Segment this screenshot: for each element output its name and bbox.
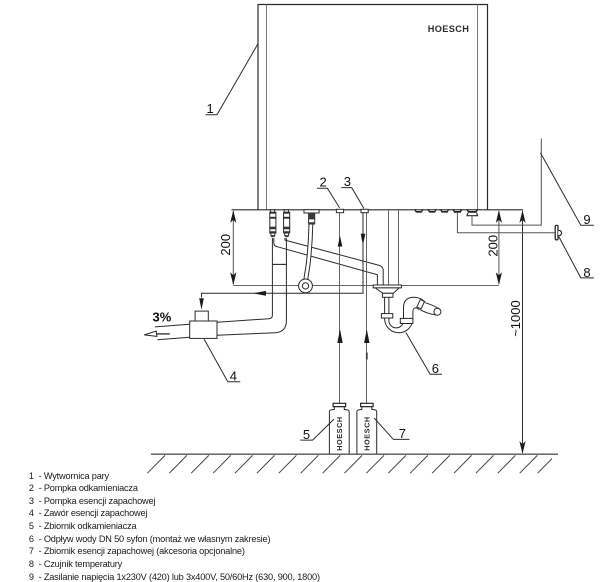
svg-text:200: 200: [486, 235, 501, 257]
svg-text:~1000: ~1000: [508, 300, 523, 337]
svg-text:1: 1: [207, 101, 214, 116]
svg-text:HOESCH: HOESCH: [428, 24, 469, 34]
svg-text:8: 8: [583, 265, 590, 280]
svg-text:4: 4: [230, 368, 237, 383]
svg-text:HOESCH: HOESCH: [335, 416, 344, 451]
svg-text:7: 7: [399, 426, 406, 441]
svg-text:6: 6: [432, 361, 439, 376]
svg-text:3%: 3%: [153, 310, 172, 325]
svg-text:9: 9: [583, 212, 590, 227]
svg-text:200: 200: [218, 234, 233, 256]
svg-text:2: 2: [320, 175, 327, 190]
svg-text:3: 3: [344, 174, 351, 189]
svg-text:HOESCH: HOESCH: [363, 416, 372, 451]
svg-text:5: 5: [303, 427, 310, 442]
